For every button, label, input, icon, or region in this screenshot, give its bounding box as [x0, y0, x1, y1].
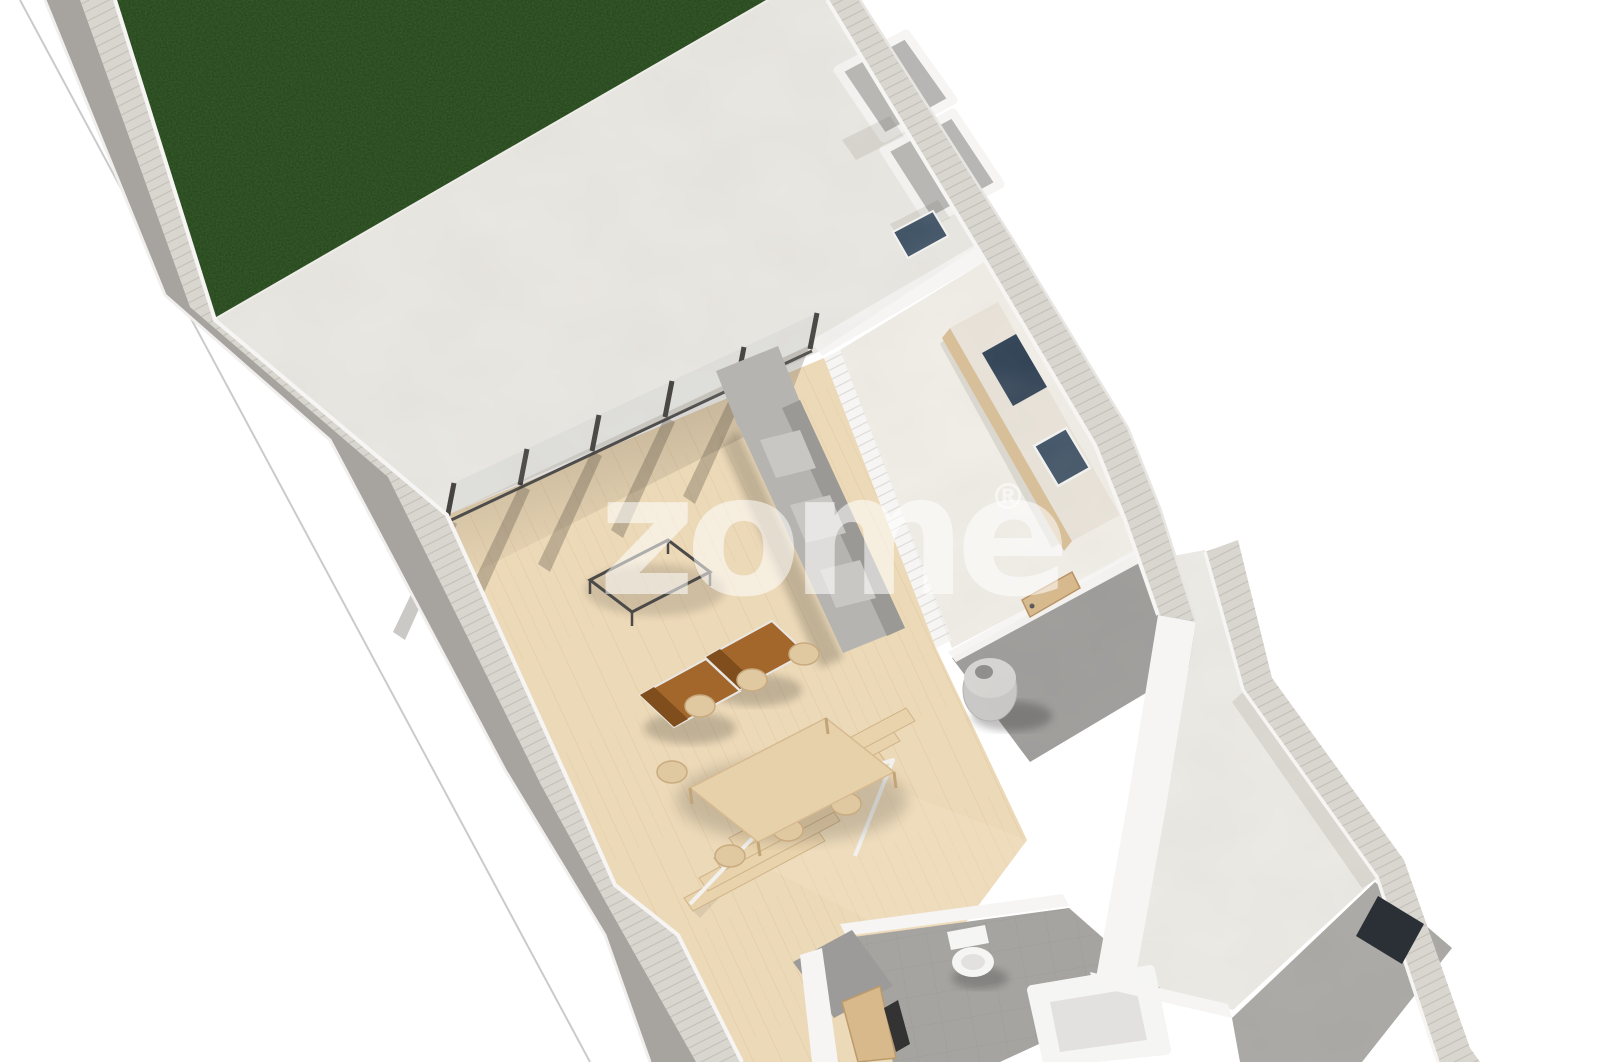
- floorplan-render: zome ®: [0, 0, 1600, 1062]
- floorplan-canvas: [0, 0, 1600, 1062]
- dining-chair: [789, 643, 819, 665]
- dining-chair: [657, 761, 687, 783]
- toilet-bowl: [961, 954, 985, 970]
- dining-chair: [737, 669, 767, 691]
- dining-chair: [715, 845, 745, 867]
- dining-chair: [685, 695, 715, 717]
